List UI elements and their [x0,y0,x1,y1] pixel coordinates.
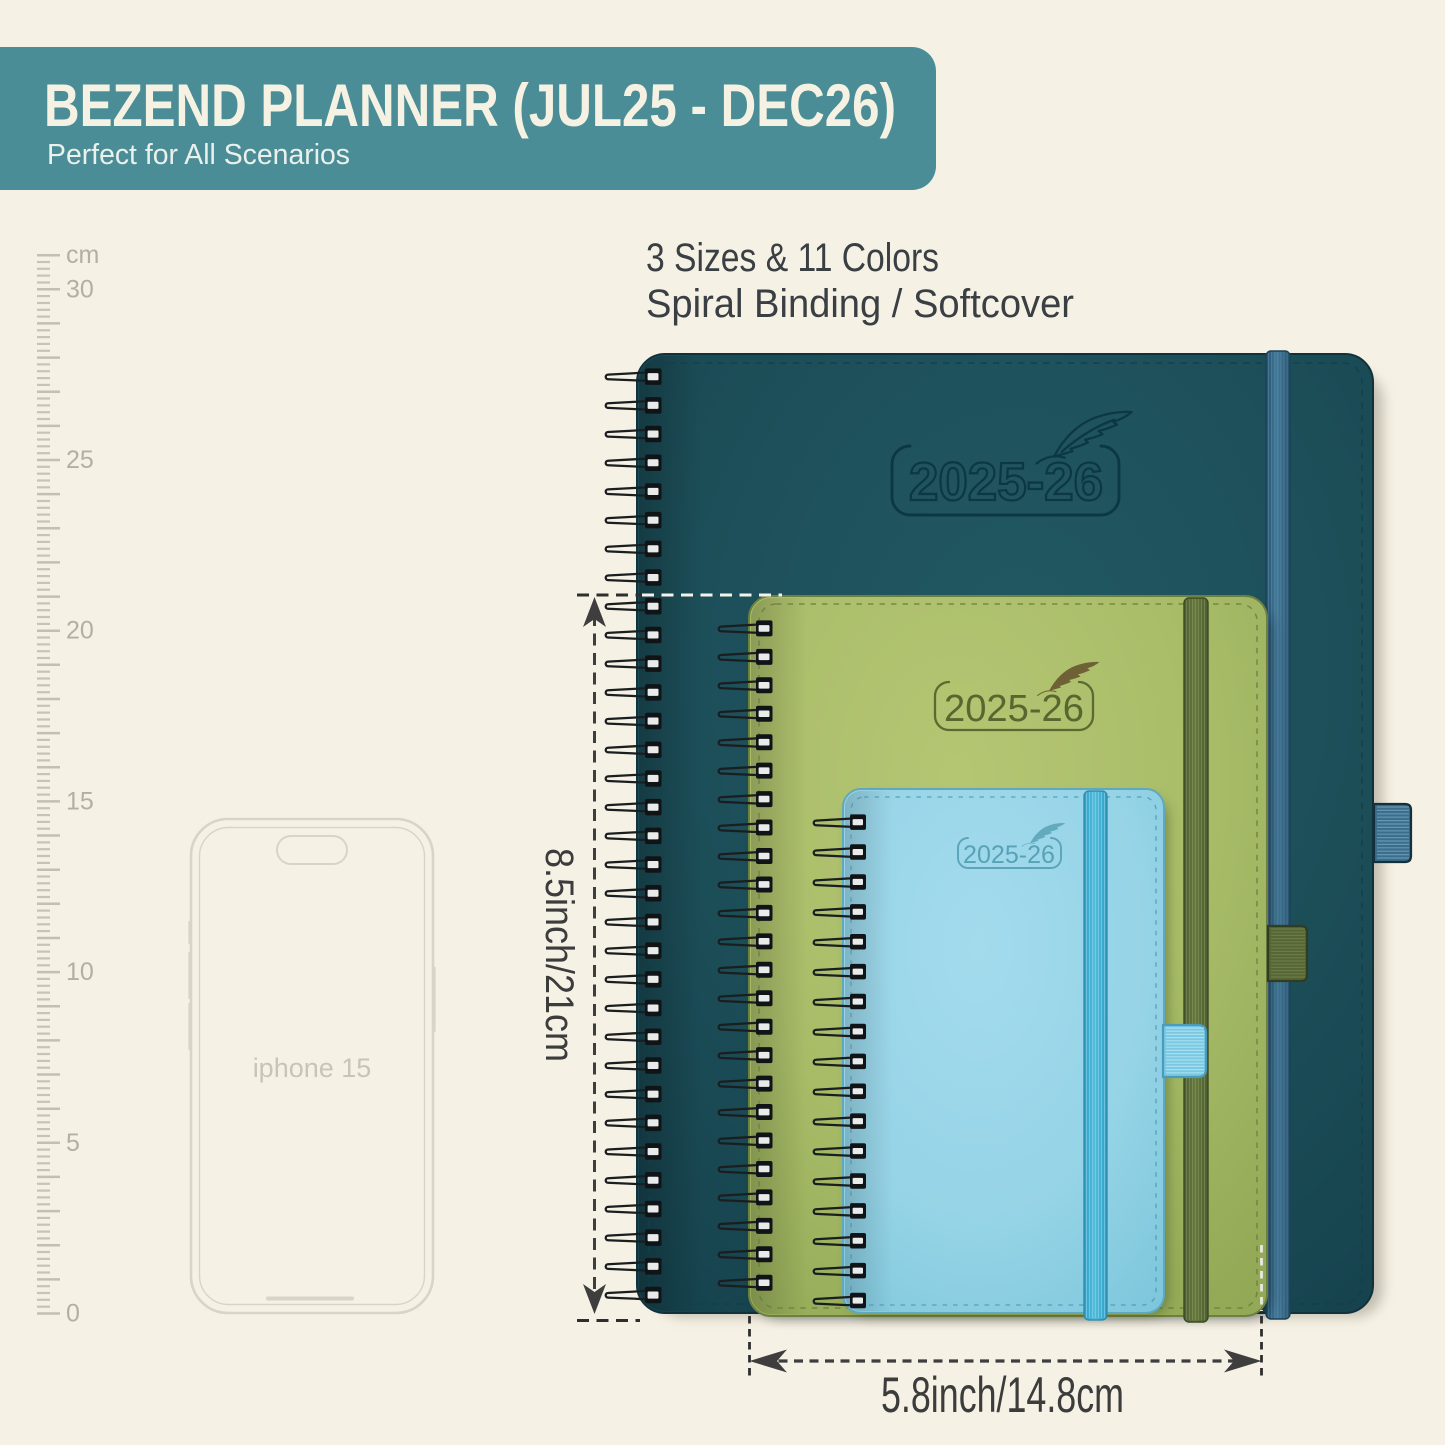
svg-text:5: 5 [66,1129,80,1157]
svg-text:20: 20 [66,617,94,645]
svg-text:0: 0 [66,1300,80,1328]
svg-text:5.8inch/14.8cm: 5.8inch/14.8cm [881,1367,1124,1423]
svg-text:cm: cm [66,241,99,269]
svg-text:2025-26: 2025-26 [944,688,1084,730]
svg-text:2025-26: 2025-26 [909,452,1103,512]
svg-text:30: 30 [66,275,94,303]
svg-text:Spiral Binding / Softcover: Spiral Binding / Softcover [646,282,1074,326]
svg-text:3 Sizes & 11 Colors: 3 Sizes & 11 Colors [646,236,939,280]
svg-text:BEZEND PLANNER (JUL25 - DEC26): BEZEND PLANNER (JUL25 - DEC26) [44,72,896,139]
svg-text:8.5inch/21cm: 8.5inch/21cm [537,848,581,1062]
svg-text:25: 25 [66,446,94,474]
svg-text:15: 15 [66,787,94,815]
svg-text:Perfect for All Scenarios: Perfect for All Scenarios [47,139,350,171]
svg-text:iphone 15: iphone 15 [253,1053,372,1083]
svg-text:10: 10 [66,958,94,986]
svg-text:2025-26: 2025-26 [963,841,1055,869]
